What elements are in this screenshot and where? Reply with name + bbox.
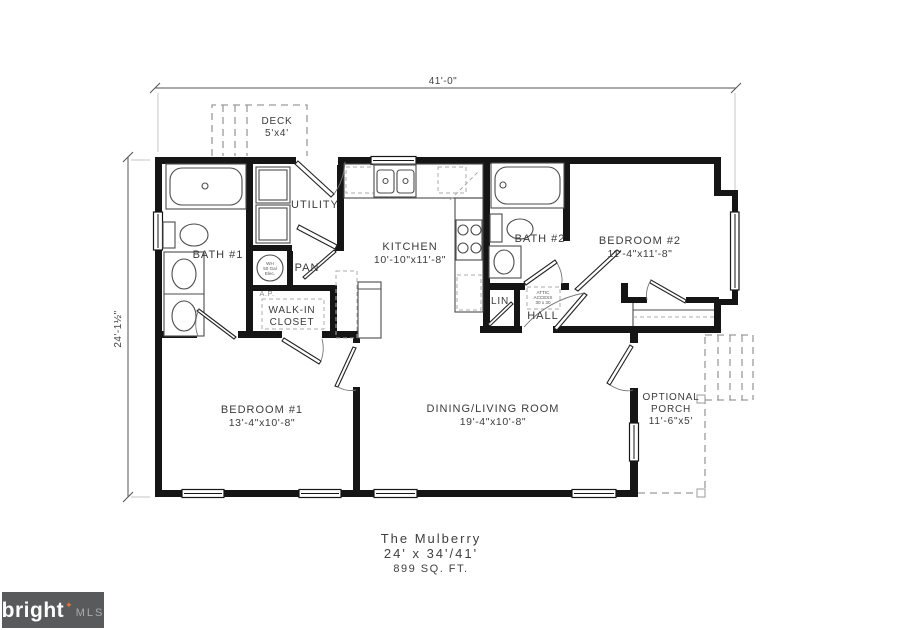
floor-plan-page: WH 50 Gal Elec. [0,0,900,630]
sink [172,301,196,331]
pantry-label: PAN [295,262,320,274]
porch-door [607,345,633,385]
bath2-label: BATH #2 [515,233,566,245]
bedroom2-closet [633,303,714,326]
utility-label: UTILITY [291,199,339,211]
dining-living-size: 19'-4"x10'-8" [460,416,527,428]
title-block: The Mulberry 24' x 34'/41' 899 SQ. FT. [381,531,482,575]
water-heater: WH 50 Gal Elec. [257,255,283,281]
bedroom2-size: 11'-4"x11'-8" [608,248,673,260]
hall-label: HALL [527,310,559,322]
bedroom1-door [335,347,356,387]
refrigerator [358,282,381,338]
bath1-label: BATH #1 [193,249,244,261]
window [630,423,639,461]
refrigerator-clearance [336,271,357,338]
kitchen-label: KITCHEN [382,241,437,253]
window [731,212,740,290]
porch-size: 11'-6"x5' [649,416,693,427]
plan-area: 899 SQ. FT. [393,563,468,575]
toilet [490,214,502,242]
utility-fixtures [256,167,290,243]
deck-label: DECK [262,116,293,127]
bedroom1-size: 13'-4"x10'-8" [229,417,296,429]
dryer [256,205,290,243]
window [299,490,341,498]
porch-line2: PORCH [651,404,691,415]
top-dimension-label: 41'-0" [429,76,457,87]
deck-door [295,161,334,197]
window [572,490,616,498]
sink [494,250,514,274]
window [182,490,224,498]
floor-plan-drawing: WH 50 Gal Elec. [0,0,900,630]
sink [172,259,196,289]
deck-size: 5'x4' [265,128,289,139]
window [374,490,417,498]
plan-size: 24' x 34'/41' [384,546,478,561]
washer [256,167,290,203]
deck-outline [212,105,307,156]
wh-line3: Elec. [265,271,275,276]
window [371,157,416,165]
kitchen-size: 10'-10"x11'-8" [374,254,446,266]
dining-living-label: DINING/LIVING ROOM [427,403,560,415]
bath2-fixtures [489,163,564,278]
toilet [163,222,175,248]
logo-star-icon: ✦ [65,600,73,611]
hall-door [554,293,587,330]
bedroom1-label: BEDROOM #1 [221,404,303,416]
walkin-line1: WALK-IN [269,305,316,316]
bath2-door [524,260,557,285]
bedroom2-label: BEDROOM #2 [599,235,681,247]
porch-post [697,489,705,497]
logo-brand-text: bright [2,600,64,621]
brightmls-logo: bright ✦ MLS [2,592,104,628]
walkin-closet-door [282,338,321,364]
logo-mls-text: MLS [76,607,105,619]
plan-name: The Mulberry [381,531,482,546]
dimension-left: 24'-1½" [113,152,150,502]
walkin-line2: CLOSET [270,317,315,328]
linen-label: LIN [491,296,509,307]
attic-access: ATTIC ACCESS 30 x 30 [527,287,560,309]
window [154,212,163,250]
access-panel-label: A.P. [259,289,274,298]
attic-line3: 30 x 30 [535,300,551,305]
left-dimension-label: 24'-1½" [113,310,124,347]
porch-line1: OPTIONAL [643,392,700,403]
